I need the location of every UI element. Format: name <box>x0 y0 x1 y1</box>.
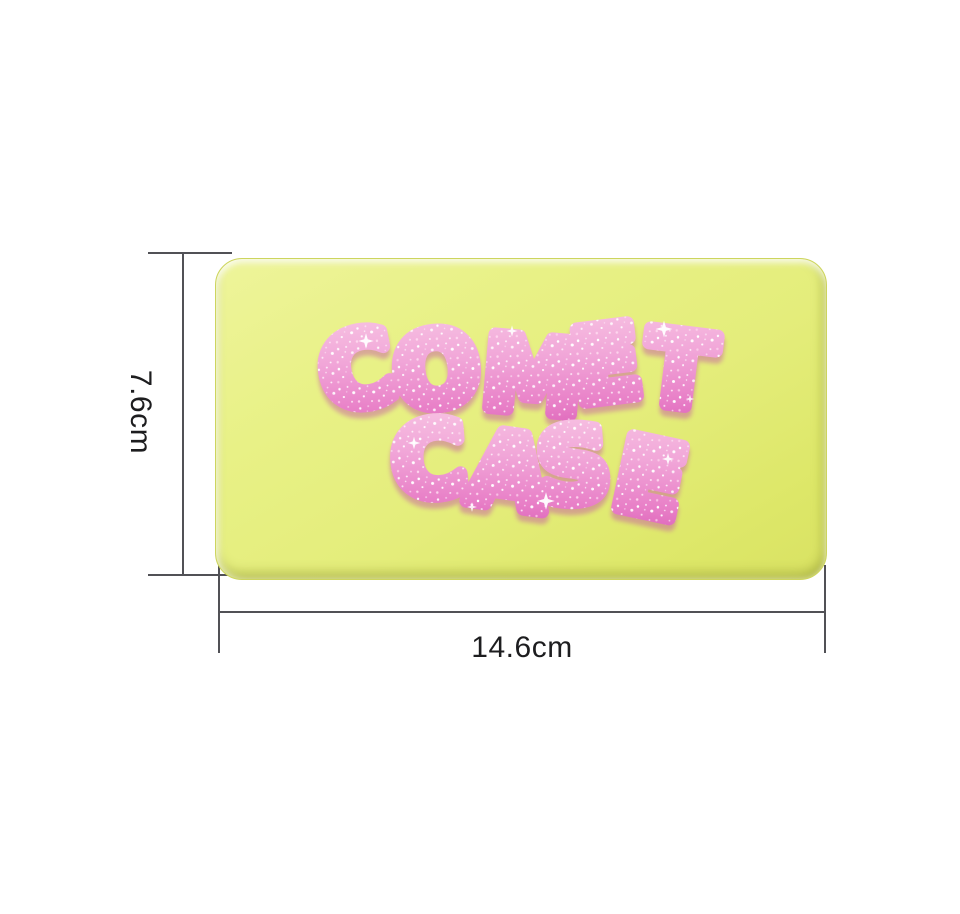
height-dimension-line <box>182 253 184 575</box>
product-case: COMET CASE COMET CASE COMET CASE <box>215 258 827 580</box>
width-dimension-label: 14.6cm <box>471 631 572 665</box>
height-dimension-label: 7.6cm <box>123 370 157 454</box>
product-dimension-figure: 7.6cm 14.6cm <box>0 0 960 914</box>
height-dimension-tick-top <box>148 252 232 254</box>
case-lettering-art: COMET CASE COMET CASE COMET CASE <box>216 259 826 579</box>
width-dimension-line <box>218 611 826 613</box>
